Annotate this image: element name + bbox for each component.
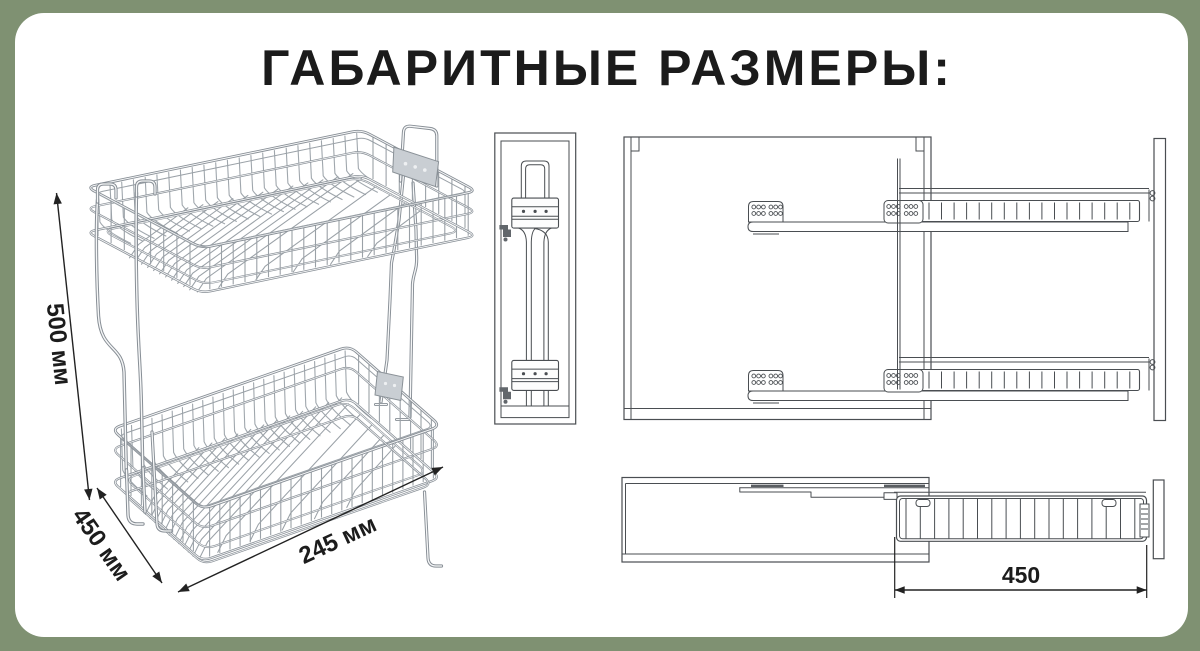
svg-text:450 мм: 450 мм [67,503,136,586]
svg-text:450: 450 [1002,562,1040,588]
svg-text:245 мм: 245 мм [295,511,381,570]
svg-text:500 мм: 500 мм [41,302,76,387]
